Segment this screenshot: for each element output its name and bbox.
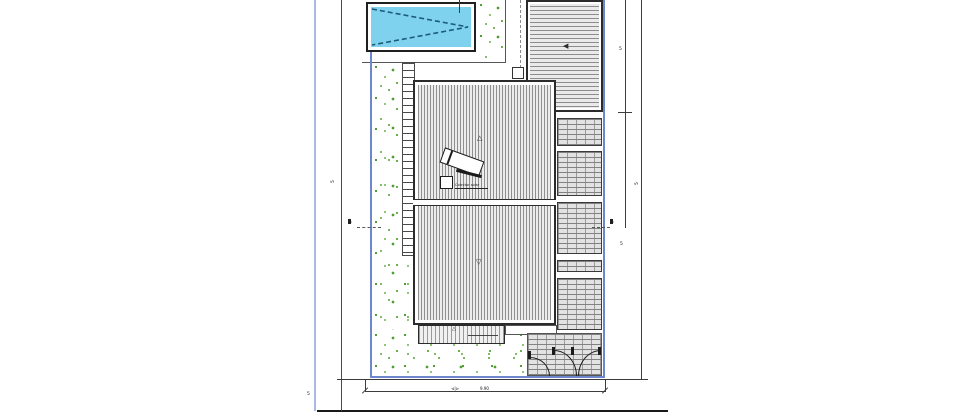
dimension-label-corner: 5: [307, 393, 310, 398]
dimension-label-left: 5: [332, 180, 337, 183]
site-plan-canvas: 5 5 ◀ △ ▽ Colector solar: [0, 0, 960, 415]
section-marker-stem: [610, 219, 613, 224]
solar-panel-frame-line: [446, 151, 452, 165]
pool-extension-line: [459, 0, 460, 13]
dimension-label-right-inner-lower: 5: [620, 243, 623, 248]
gate-post: [528, 351, 531, 359]
dimension-baseline-bottom: [337, 379, 645, 380]
roof-slope-arrow-down: ▽: [476, 259, 481, 266]
porch-arrow: △: [452, 327, 456, 332]
dimension-value-bottom: 9.90: [480, 387, 489, 391]
dimension-marker-bottom: ⊲|⊳: [451, 387, 459, 391]
porch-detail-line: [468, 335, 498, 336]
gate-post: [598, 347, 601, 355]
plot-boundary-right: [603, 0, 605, 378]
plot-boundary-bottom: [370, 376, 605, 378]
dimension-tick-right-outer: [634, 379, 648, 380]
dimension-tick: [602, 387, 608, 393]
sheet-border-bottom: [317, 410, 668, 412]
brick-panel: [557, 118, 602, 146]
sheet-guide-left: [314, 0, 316, 411]
brick-panel: [557, 260, 602, 272]
deck-direction-arrow: ◀: [563, 43, 568, 50]
dimension-line-bottom: [365, 391, 605, 392]
gate-post: [571, 347, 574, 355]
pool-water: [371, 7, 471, 47]
plot-boundary-left: [370, 52, 372, 378]
dimension-line-right-inner: [625, 0, 626, 228]
dimension-line-right-outer: [641, 0, 642, 380]
roof-slope-arrow-up: △: [477, 135, 482, 142]
solar-collector-box: [440, 176, 453, 189]
solar-collector-label: Colector solar: [455, 183, 488, 189]
brick-panel: [557, 202, 602, 254]
pool-depth-lines: [371, 7, 471, 47]
brick-panel: [557, 278, 602, 330]
section-marker-stem: [348, 219, 351, 224]
brick-panel: [557, 151, 602, 196]
dimension-tick-right-inner: [618, 112, 632, 113]
gate-post: [552, 347, 555, 355]
section-line-right: [592, 227, 610, 228]
dimension-label-right-outer: 5: [636, 182, 641, 185]
garden-pool-strip: [477, 0, 506, 62]
dimension-label-right-inner-top: 5: [619, 48, 622, 53]
roof-ridge-divider: [413, 199, 556, 206]
dimension-line-left: [341, 0, 342, 411]
section-line-left: [357, 227, 381, 228]
chimney: [512, 67, 524, 79]
